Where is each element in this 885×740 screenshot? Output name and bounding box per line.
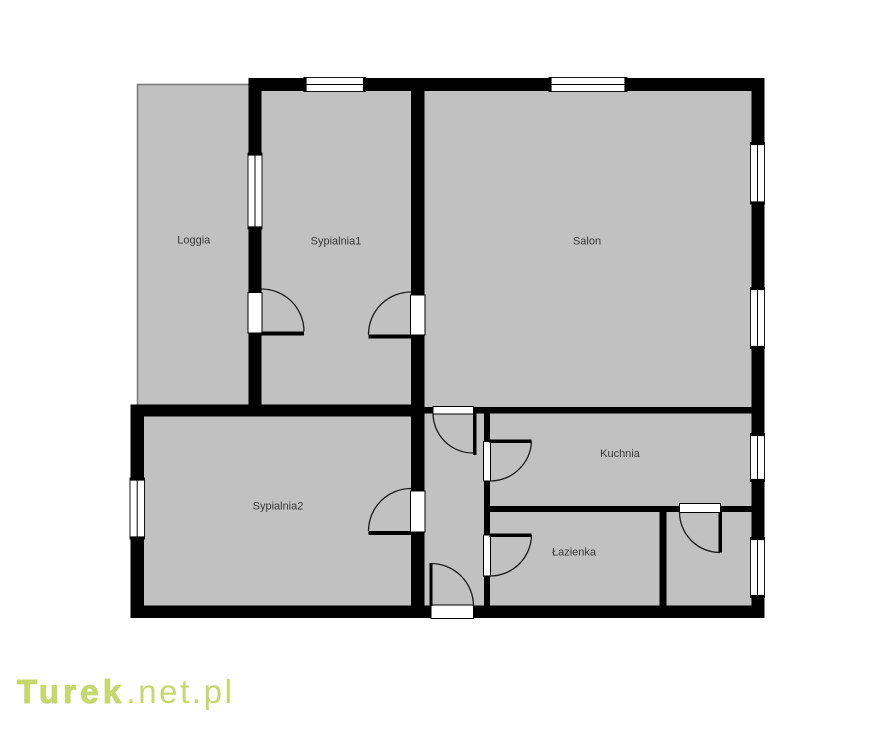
svg-text:Sypialnia2: Sypialnia2 xyxy=(253,501,304,513)
svg-text:Salon: Salon xyxy=(573,236,601,248)
svg-text:Turek.net.pl: Turek.net.pl xyxy=(17,673,235,710)
svg-text:Sypialnia1: Sypialnia1 xyxy=(311,236,362,248)
svg-text:Loggia: Loggia xyxy=(177,235,211,247)
svg-text:Łazienka: Łazienka xyxy=(552,547,597,559)
svg-text:Kuchnia: Kuchnia xyxy=(600,448,641,460)
